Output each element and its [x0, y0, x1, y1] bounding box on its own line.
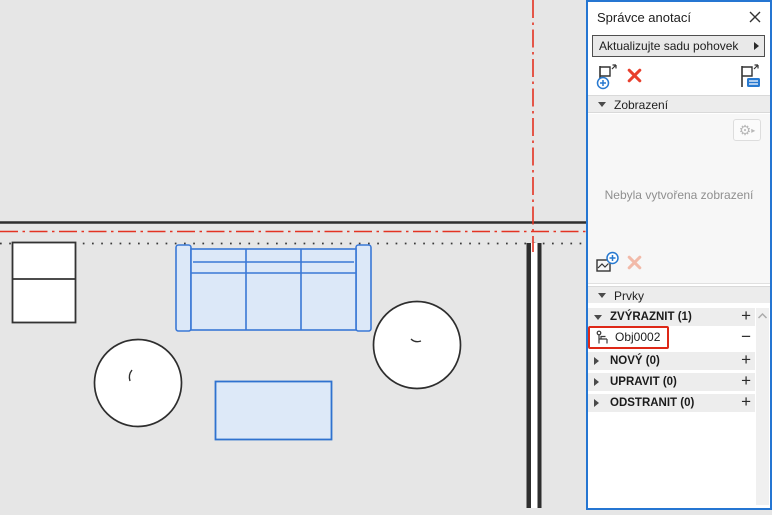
group-label: ODSTRANIT (0): [610, 394, 694, 412]
chair-object-icon: [595, 330, 610, 351]
elements-header-label: Prvky: [614, 288, 644, 304]
close-icon[interactable]: [748, 10, 762, 24]
tree-item-obj0002[interactable]: Obj0002 −: [588, 327, 755, 347]
flyout-arrow-icon: [754, 42, 759, 50]
views-settings-button[interactable]: ⚙▸: [733, 119, 761, 141]
tree-group-highlight[interactable]: ZVÝRAZNIT (1) +: [588, 308, 755, 326]
delete-annotation-icon[interactable]: [626, 67, 643, 89]
group-label: UPRAVIT (0): [610, 373, 677, 391]
group-label: ZVÝRAZNIT (1): [610, 308, 692, 326]
group-label: NOVÝ (0): [610, 352, 660, 370]
sofa-element[interactable]: [176, 245, 371, 331]
gear-icon: ⚙: [739, 122, 752, 138]
scrollbar[interactable]: [756, 308, 769, 505]
add-to-group-button[interactable]: +: [741, 306, 751, 326]
gear-arrow-icon: ▸: [751, 126, 755, 135]
update-annotation-set-button[interactable]: Aktualizujte sadu pohovek: [592, 35, 765, 57]
item-label: Obj0002: [615, 327, 660, 347]
chevron-down-icon: [598, 293, 606, 298]
chevron-down-icon[interactable]: [594, 315, 602, 320]
annotation-manager-panel: Správce anotací Aktualizujte sadu pohove…: [586, 0, 772, 510]
add-annotation-icon[interactable]: [595, 63, 619, 95]
tree-group-new[interactable]: NOVÝ (0) +: [588, 352, 755, 370]
add-to-group-button[interactable]: +: [741, 350, 751, 370]
views-section-body: ⚙▸ Nebyla vytvořena zobrazení: [588, 114, 770, 284]
panel-title: Správce anotací: [597, 10, 691, 25]
views-empty-message: Nebyla vytvořena zobrazení: [588, 188, 770, 202]
add-to-group-button[interactable]: +: [741, 371, 751, 391]
chevron-down-icon: [598, 102, 606, 107]
chevron-right-icon[interactable]: [594, 357, 599, 365]
floorplan-drawing: [0, 0, 586, 510]
scroll-up-icon[interactable]: [757, 312, 768, 320]
round-table-right[interactable]: [374, 302, 461, 389]
tree-group-delete[interactable]: ODSTRANIT (0) +: [588, 394, 755, 412]
floorplan-canvas[interactable]: [0, 0, 586, 510]
views-section-header[interactable]: Zobrazení: [588, 95, 770, 113]
remove-item-button[interactable]: −: [741, 327, 751, 347]
add-view-icon[interactable]: [595, 251, 619, 280]
add-to-group-button[interactable]: +: [741, 392, 751, 412]
round-table-left[interactable]: [95, 340, 182, 427]
coffee-table-element[interactable]: [216, 382, 332, 440]
update-button-label: Aktualizujte sadu pohovek: [599, 39, 738, 53]
elements-section-header[interactable]: Prvky: [588, 286, 770, 304]
views-header-label: Zobrazení: [614, 97, 668, 113]
elements-tree: ZVÝRAZNIT (1) + Obj0002 − NOVÝ (0) + UPR…: [588, 303, 770, 508]
tree-group-edit[interactable]: UPRAVIT (0) +: [588, 373, 755, 391]
chevron-right-icon[interactable]: [594, 399, 599, 407]
annotation-details-icon[interactable]: [738, 63, 762, 95]
vertical-wall[interactable]: [527, 243, 542, 508]
cabinet-element[interactable]: [13, 243, 76, 323]
delete-view-icon-disabled: [626, 254, 643, 276]
chevron-right-icon[interactable]: [594, 378, 599, 386]
